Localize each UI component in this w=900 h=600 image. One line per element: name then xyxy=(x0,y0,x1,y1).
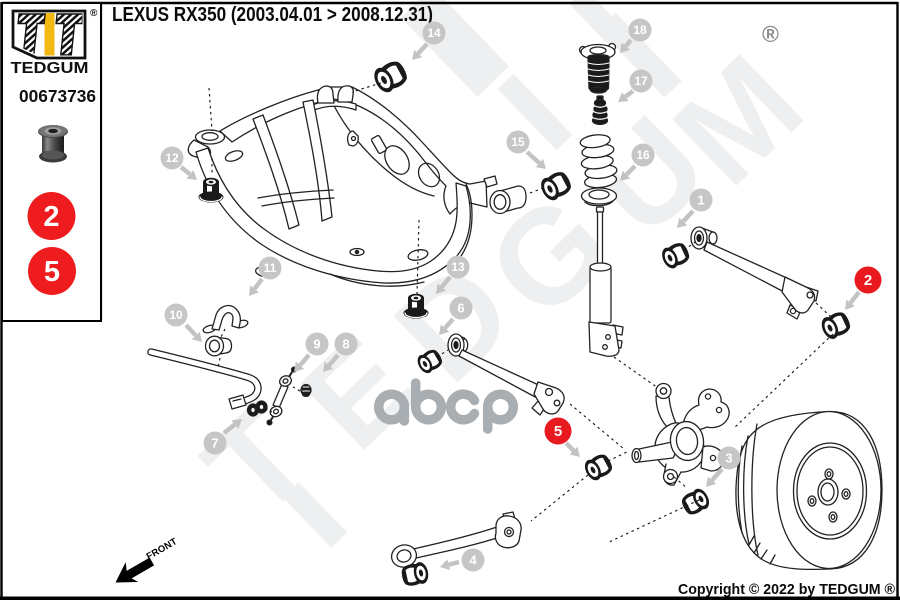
svg-text:3: 3 xyxy=(725,451,732,466)
svg-text:11: 11 xyxy=(264,261,277,275)
svg-text:9: 9 xyxy=(313,337,320,352)
svg-text:Copyright © 2022 by TEDGUM ®: Copyright © 2022 by TEDGUM ® xyxy=(678,581,895,598)
svg-text:7: 7 xyxy=(211,436,218,451)
svg-text:16: 16 xyxy=(636,148,650,162)
svg-text:5: 5 xyxy=(554,423,562,440)
svg-text:13: 13 xyxy=(451,260,465,274)
svg-text:17: 17 xyxy=(634,74,648,88)
svg-text:14: 14 xyxy=(427,26,441,40)
svg-text:2: 2 xyxy=(43,201,59,233)
svg-text:15: 15 xyxy=(511,135,525,149)
svg-text:18: 18 xyxy=(633,23,647,37)
svg-text:5: 5 xyxy=(44,256,60,288)
svg-text:®: ® xyxy=(762,21,779,47)
svg-text:6: 6 xyxy=(457,301,464,316)
svg-text:8: 8 xyxy=(342,337,349,352)
svg-text:10: 10 xyxy=(169,308,183,322)
svg-text:1: 1 xyxy=(697,193,704,208)
svg-text:4: 4 xyxy=(469,553,477,568)
svg-text:®: ® xyxy=(90,8,98,19)
svg-text:2: 2 xyxy=(864,272,872,289)
svg-text:TEDGUM: TEDGUM xyxy=(11,60,89,77)
svg-text:12: 12 xyxy=(165,151,179,165)
svg-text:LEXUS RX350 (2003.04.01 > 200: LEXUS RX350 (2003.04.01 > 2008.12.31) xyxy=(112,4,433,26)
svg-text:00673736: 00673736 xyxy=(19,86,96,106)
